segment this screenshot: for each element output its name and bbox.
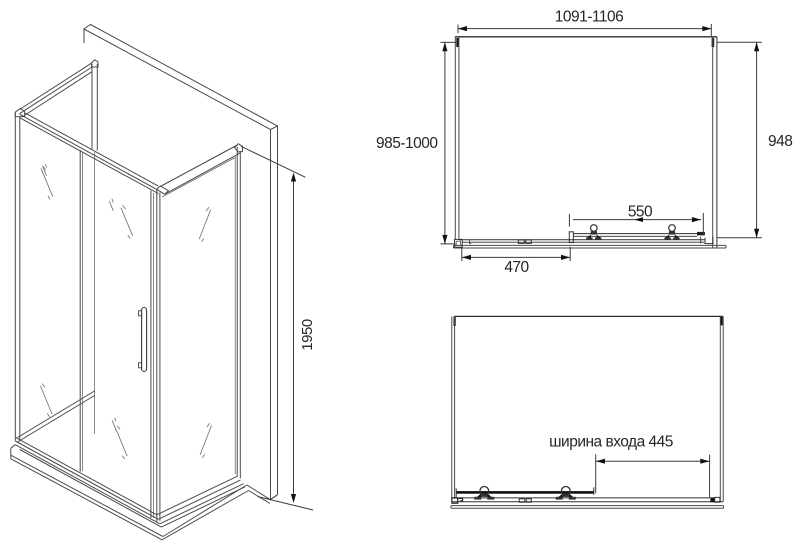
svg-text:ширина входа 445: ширина входа 445 (549, 434, 673, 451)
svg-text:1950: 1950 (299, 319, 316, 351)
svg-text:550: 550 (628, 204, 653, 221)
svg-text:948: 948 (768, 133, 792, 150)
svg-text:1091-1106: 1091-1106 (555, 9, 623, 26)
svg-text:470: 470 (504, 259, 529, 276)
svg-text:985-1000: 985-1000 (376, 135, 438, 152)
